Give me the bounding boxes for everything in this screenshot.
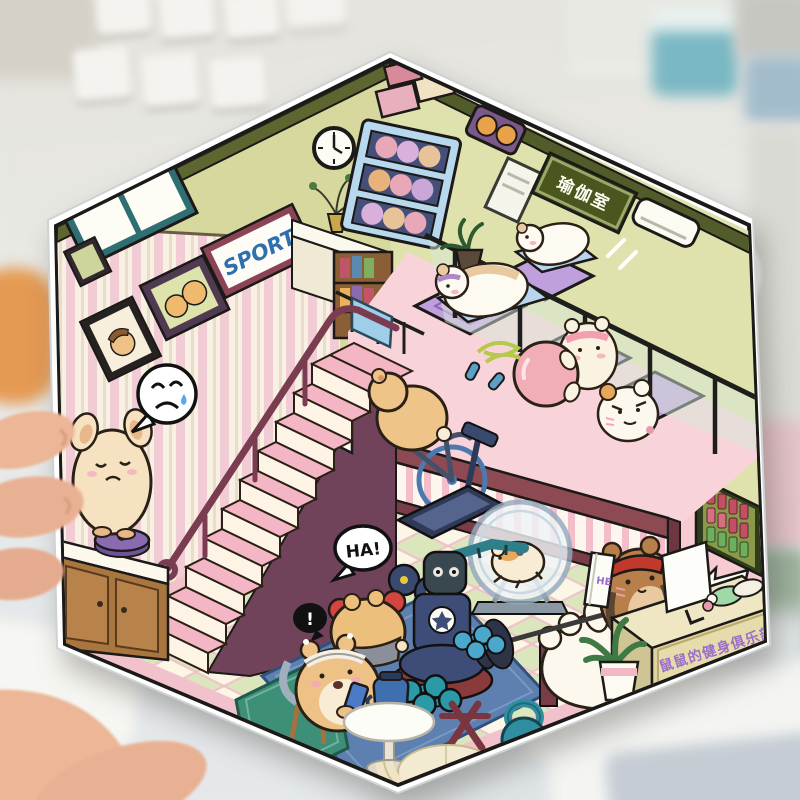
diorama-card: SPORT bbox=[48, 52, 782, 800]
yoga-mat-rack bbox=[341, 119, 462, 249]
photo-of-card-on-desk: SPORT bbox=[0, 0, 800, 800]
exclamation-text: ! bbox=[306, 610, 314, 630]
ha-text: HA! bbox=[345, 539, 382, 563]
grumpy-hamster bbox=[598, 380, 658, 441]
wall-clock bbox=[314, 128, 354, 168]
reception-book-text: HE bbox=[595, 576, 612, 589]
